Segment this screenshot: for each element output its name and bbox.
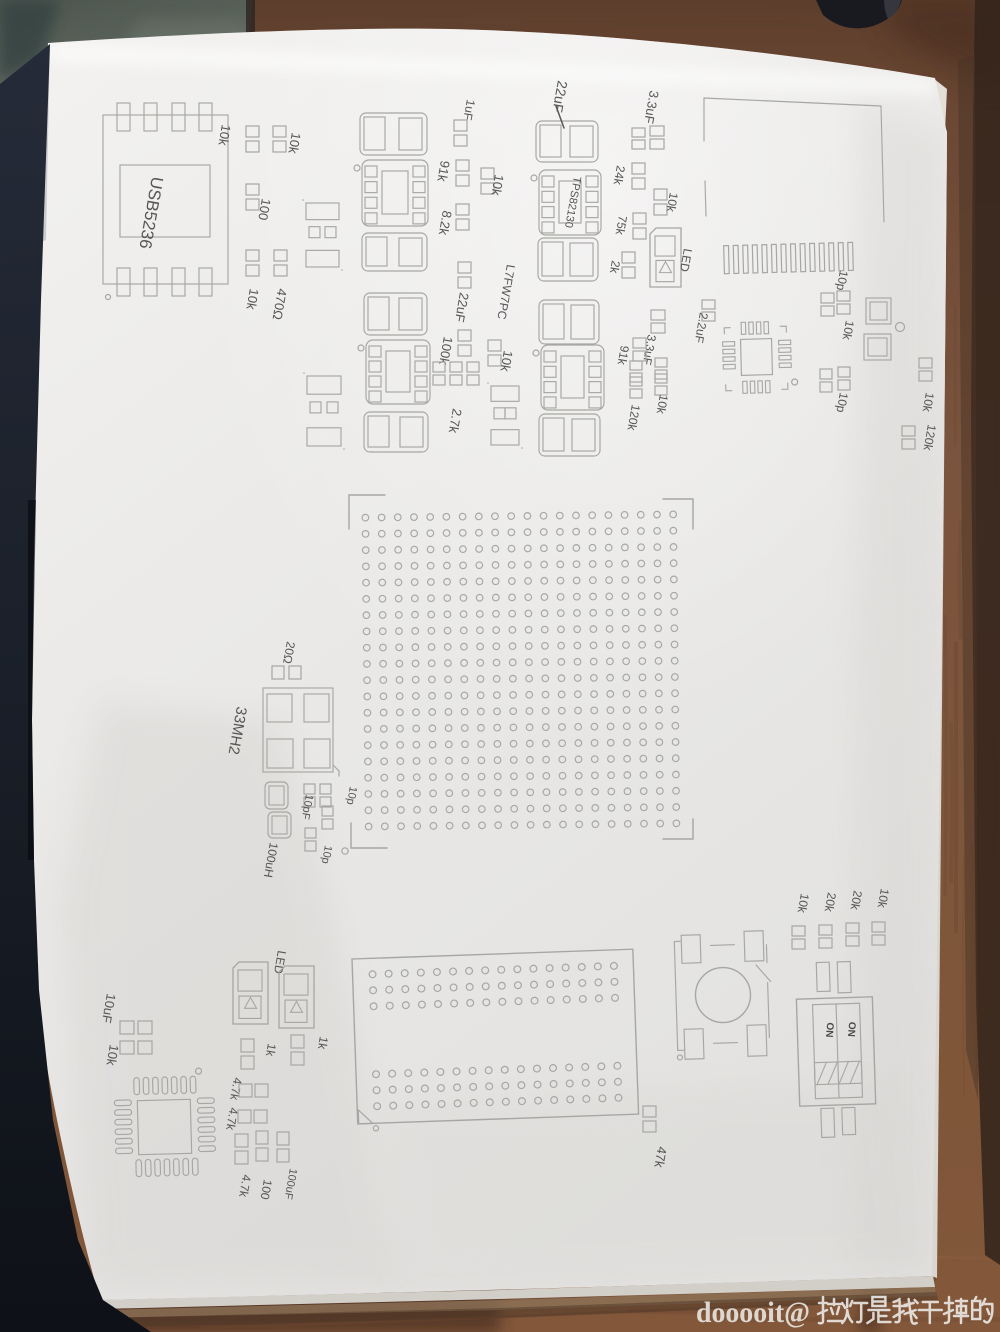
svg-text:ON: ON: [823, 1022, 835, 1038]
svg-text:dooooit@: dooooit@: [696, 1296, 810, 1329]
svg-text:ON: ON: [845, 1021, 857, 1037]
